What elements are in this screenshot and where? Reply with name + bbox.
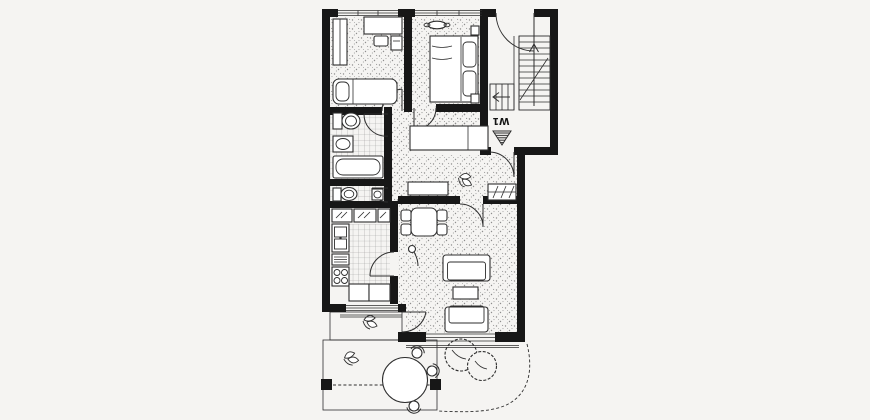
window-childrens-room	[338, 11, 398, 16]
armchair-icon	[445, 306, 488, 332]
terrace-table-icon	[383, 358, 428, 403]
double-bed-icon	[430, 36, 478, 102]
coffee-table-icon	[453, 287, 478, 299]
builtin-closet-icon	[410, 126, 488, 150]
wardrobe-icon	[333, 19, 347, 65]
toilet-icon	[333, 113, 360, 129]
window-kitchen	[340, 306, 402, 318]
wc-basin-icon	[372, 189, 383, 200]
door-building-entrance	[496, 13, 534, 51]
stove-icon	[332, 267, 349, 286]
terrace-post-right	[430, 379, 441, 390]
page-background: W1	[0, 0, 870, 420]
svg-text:W1: W1	[492, 115, 509, 126]
kitchen-counter-icon	[349, 284, 390, 301]
entrance-marker-icon	[493, 131, 511, 145]
terrace-upper-deck	[330, 312, 402, 340]
coat-rack-icon	[488, 184, 516, 200]
kitchen-sink-icon	[332, 224, 349, 252]
upper-cabinets-icon	[332, 209, 390, 222]
single-bed-icon	[333, 79, 397, 104]
stairs-icon	[490, 36, 550, 110]
sofa-icon	[443, 255, 490, 281]
window-bedroom	[415, 11, 482, 16]
stairs-up-arrow-icon	[530, 44, 539, 106]
terrace-post-left	[321, 379, 332, 390]
bathroom-sink-icon	[333, 136, 353, 152]
dining-table-icon	[411, 208, 437, 236]
apartment-unit-label: W1	[492, 115, 509, 126]
floor-plan-image: W1	[0, 0, 870, 420]
bathtub-icon	[333, 156, 383, 178]
wc-toilet-icon	[333, 188, 357, 202]
terrace-plant-icon	[342, 315, 377, 366]
sideboard-icon	[408, 182, 448, 195]
stairs-lower-arrow-icon	[493, 93, 510, 102]
kitchen-drainer-icon	[332, 254, 349, 265]
